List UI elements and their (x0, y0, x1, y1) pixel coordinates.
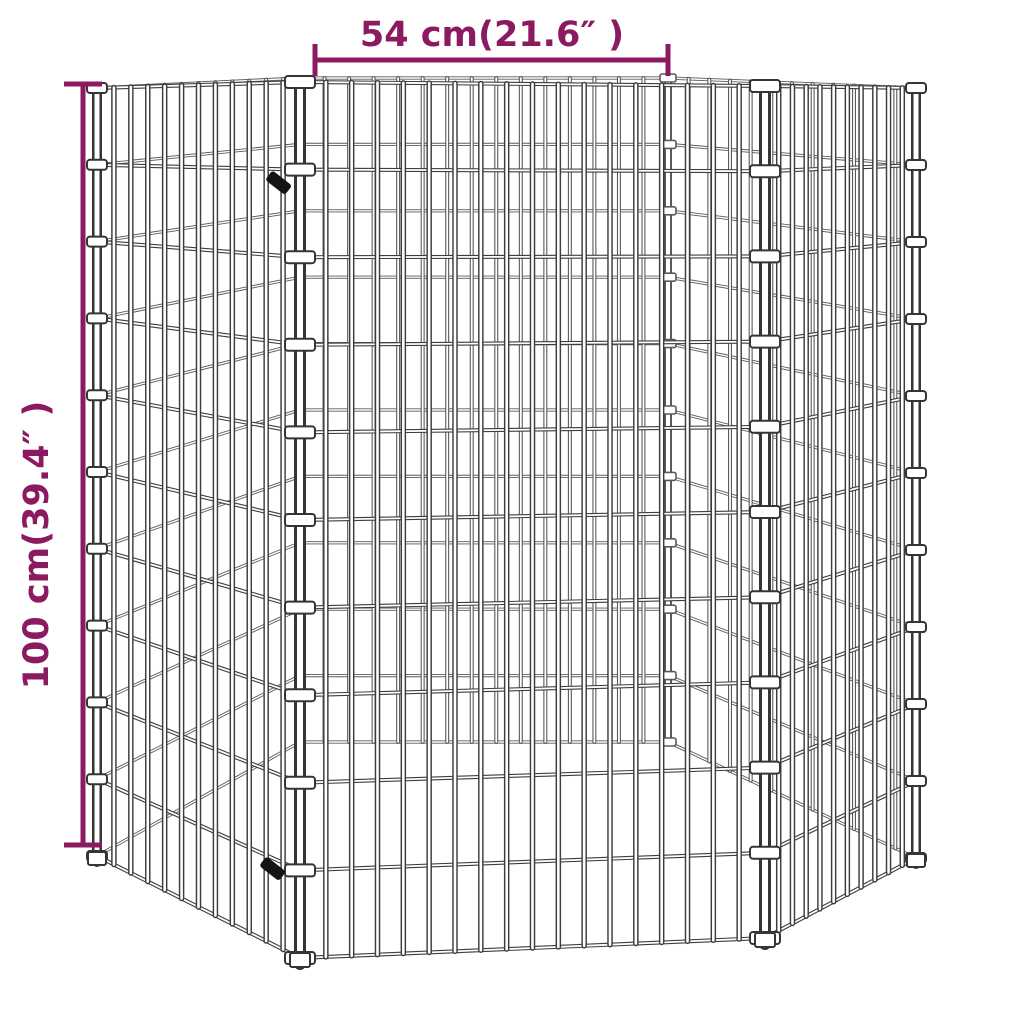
post-clip (87, 621, 107, 631)
post-clip (285, 76, 315, 88)
post-clip (87, 313, 107, 323)
post-clip (87, 774, 107, 784)
post-clip (750, 676, 780, 688)
post-clip (87, 467, 107, 477)
post-clip (750, 165, 780, 177)
post-clip (906, 237, 926, 247)
post-clip (906, 622, 926, 632)
post-clip (285, 251, 315, 263)
post-clip (87, 390, 107, 400)
post-clip (906, 391, 926, 401)
post-clip (906, 160, 926, 170)
cage-illustration (87, 74, 926, 967)
post-clip (87, 160, 107, 170)
product-diagram: 54 cm(21.6″ ) 100 cm(39.4″ ) (0, 0, 1024, 1024)
post-clip (285, 339, 315, 351)
post-clip (906, 545, 926, 555)
playpen-diagram-canvas: 54 cm(21.6″ ) 100 cm(39.4″ ) (0, 0, 1024, 1024)
height-dimension-label: 100 cm(39.4″ ) (17, 401, 57, 690)
post-clip (285, 426, 315, 438)
post-clip (906, 699, 926, 709)
post-clip (750, 506, 780, 518)
post-clip (906, 314, 926, 324)
post-foot (755, 933, 775, 947)
post-clip (87, 697, 107, 707)
post-clip (285, 164, 315, 176)
post-foot (290, 953, 310, 967)
post-clip (285, 514, 315, 526)
post-clip (285, 777, 315, 789)
post-clip (906, 776, 926, 786)
post-foot (907, 854, 925, 867)
post-clip (87, 544, 107, 554)
post-clip (750, 762, 780, 774)
post-clip (906, 83, 926, 93)
post-clip (750, 847, 780, 859)
post-clip (750, 250, 780, 262)
post-clip (750, 421, 780, 433)
post-clip (750, 591, 780, 603)
cage-wire (765, 858, 916, 938)
post-clip (285, 864, 315, 876)
post-clip (285, 689, 315, 701)
post-foot (88, 852, 106, 865)
post-clip (87, 237, 107, 247)
post-clip (750, 80, 780, 92)
post-clip (750, 336, 780, 348)
width-dimension-label: 54 cm(21.6″ ) (360, 15, 624, 55)
post-clip (285, 602, 315, 614)
post-clip (906, 468, 926, 478)
